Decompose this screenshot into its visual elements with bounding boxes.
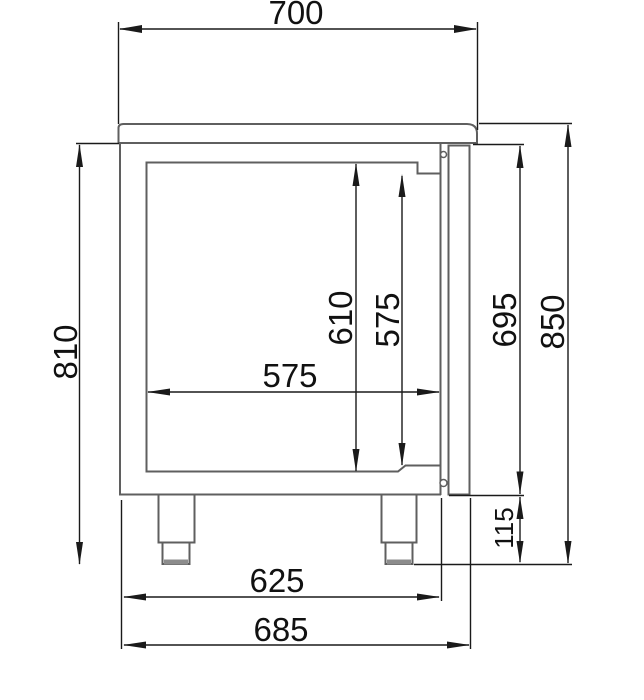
arrowhead-down-icon xyxy=(565,541,572,564)
dim-label-115: 115 xyxy=(489,507,519,548)
arrowhead-down-icon xyxy=(517,472,524,495)
dim-label-575-horizontal: 575 xyxy=(262,357,317,394)
arrowhead-up-icon xyxy=(517,145,524,168)
dimension-leg-height: 115 xyxy=(489,497,524,564)
arrowhead-right-icon xyxy=(417,389,440,396)
left-foot-pad xyxy=(164,560,188,565)
dimension-interior-height: 610 xyxy=(322,163,360,472)
cabinet-body xyxy=(119,124,478,495)
arrowhead-down-icon xyxy=(76,542,83,565)
feet xyxy=(159,495,417,565)
left-leg-upper-outline xyxy=(159,495,195,543)
arrowhead-down-icon xyxy=(353,449,360,472)
arrowhead-right-icon xyxy=(447,642,470,649)
arrowhead-down-icon xyxy=(399,443,406,466)
right-leg-upper-outline xyxy=(382,495,417,543)
arrowhead-up-icon xyxy=(399,174,406,197)
hinge-top-icon xyxy=(441,152,447,158)
arrowhead-left-icon xyxy=(119,25,142,33)
dim-label-575-vertical: 575 xyxy=(369,292,406,347)
door-outline xyxy=(449,146,470,495)
arrowhead-up-icon xyxy=(565,124,572,147)
dim-label-850: 850 xyxy=(534,294,571,349)
dim-label-610: 610 xyxy=(322,290,359,345)
right-foot-pad xyxy=(387,560,411,565)
dim-label-700: 700 xyxy=(268,0,323,31)
dimension-front-height: 695 xyxy=(449,145,524,496)
arrowhead-up-icon xyxy=(76,144,83,167)
dimension-top-width: 700 xyxy=(119,0,478,130)
arrowhead-right-icon xyxy=(417,594,440,601)
arrowhead-left-icon xyxy=(147,389,170,396)
arrowhead-right-icon xyxy=(454,25,477,33)
dim-label-695: 695 xyxy=(486,292,523,347)
dim-label-625: 625 xyxy=(249,562,304,599)
arrowhead-left-icon xyxy=(123,642,146,649)
arrowhead-left-icon xyxy=(123,594,146,601)
dim-label-810: 810 xyxy=(47,324,84,379)
dimension-opening-height: 575 xyxy=(369,174,406,466)
drawing-canvas: 700 810 610 575 575 xyxy=(0,0,644,700)
dim-label-685: 685 xyxy=(253,611,308,648)
technical-drawing: 700 810 610 575 575 xyxy=(0,0,644,700)
worktop-outline xyxy=(119,124,478,143)
dimension-interior-depth: 575 xyxy=(147,357,440,396)
dimension-body-height-left: 810 xyxy=(47,144,119,566)
arrowhead-up-icon xyxy=(353,163,360,186)
hinge-bottom-icon xyxy=(440,480,447,487)
